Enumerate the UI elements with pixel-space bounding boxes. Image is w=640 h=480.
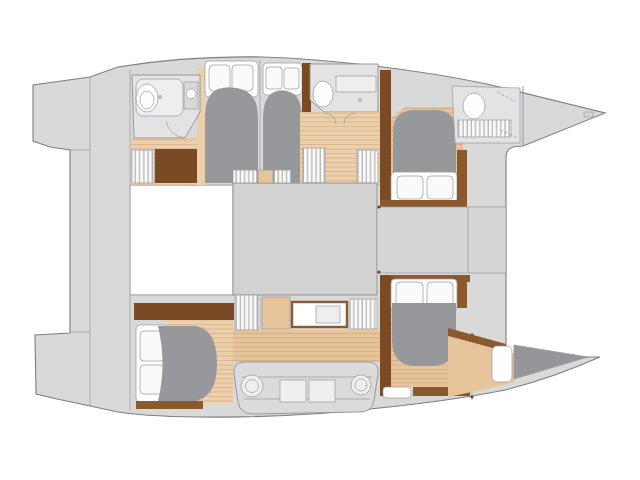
hatch-b-slats bbox=[274, 170, 291, 183]
toilet-aft bbox=[136, 84, 158, 112]
bed2-duvet bbox=[263, 90, 302, 183]
bfwd-frame-left bbox=[380, 275, 391, 396]
toilet-forepeak bbox=[463, 93, 485, 119]
top-hull-aft-head bbox=[132, 75, 200, 138]
hatch-a-slats bbox=[233, 170, 257, 183]
bfwd-bed-duvet bbox=[392, 303, 456, 366]
floor-plan-stage bbox=[0, 0, 640, 480]
bed1-pillow-right bbox=[232, 65, 253, 91]
fwd-bed-pillow-left bbox=[397, 176, 423, 199]
bed1-pillow-left bbox=[209, 65, 230, 91]
bow-fitting bbox=[584, 112, 593, 117]
galley-step bbox=[262, 297, 290, 329]
fwd-bed-pillow-right bbox=[427, 176, 453, 199]
bed2-pillow-right bbox=[284, 68, 299, 89]
corner-table-right bbox=[351, 375, 371, 395]
galley-sink bbox=[316, 306, 340, 323]
shower-drain bbox=[158, 95, 162, 99]
aft-cabinet bbox=[155, 149, 197, 183]
hinge-dot-1 bbox=[377, 205, 380, 208]
settee-table-left bbox=[280, 380, 306, 402]
saloon-top-hatches bbox=[233, 170, 291, 183]
galley-floor-planks bbox=[233, 330, 380, 362]
toilet-fwd bbox=[313, 81, 333, 107]
locker-right-slats bbox=[357, 150, 378, 185]
catamaran-floor-plan bbox=[0, 0, 640, 480]
saloon-block bbox=[233, 183, 377, 295]
aft-hull-gap bbox=[131, 186, 232, 294]
galley-locker-right-slats bbox=[350, 299, 377, 329]
wardrobe-fwd bbox=[380, 70, 391, 203]
hatch-step bbox=[258, 170, 273, 183]
bed1-duvet bbox=[205, 87, 258, 183]
fore-gangway bbox=[377, 207, 506, 273]
settee bbox=[234, 362, 379, 414]
settee-table-right bbox=[309, 380, 335, 402]
forepeak-mattress bbox=[492, 346, 512, 382]
top-hull-fwd-head bbox=[310, 64, 378, 112]
fwd-bed-duvet bbox=[393, 110, 456, 177]
fwd-head-counter bbox=[336, 76, 376, 92]
bfwd-frame-right bbox=[457, 275, 467, 308]
fwd-bed-frame-foot bbox=[380, 200, 467, 207]
top-hull-aft-cabin-1 bbox=[205, 61, 258, 183]
fwd-head-drain bbox=[358, 98, 362, 102]
hinge-dot-2 bbox=[377, 270, 380, 273]
aft-bed-frame-foot bbox=[136, 401, 203, 409]
top-hull-aft-cabin-2 bbox=[263, 63, 302, 183]
bfwd-hull-window bbox=[383, 387, 411, 398]
aft-cabin-headboard bbox=[134, 303, 234, 320]
forepeak-bench-slats bbox=[458, 120, 511, 137]
aft-bed-duvet bbox=[158, 326, 217, 401]
bed2-pillow-left bbox=[266, 67, 282, 89]
hull-steps-treads bbox=[235, 295, 258, 330]
companionway-steps-treads bbox=[132, 150, 154, 183]
locker-left-slats bbox=[303, 148, 325, 183]
fwd-bed-frame-right bbox=[457, 150, 467, 207]
hinge-dot-4 bbox=[470, 395, 473, 398]
corner-table-left bbox=[241, 375, 263, 397]
washbasin-bowl bbox=[186, 89, 196, 99]
